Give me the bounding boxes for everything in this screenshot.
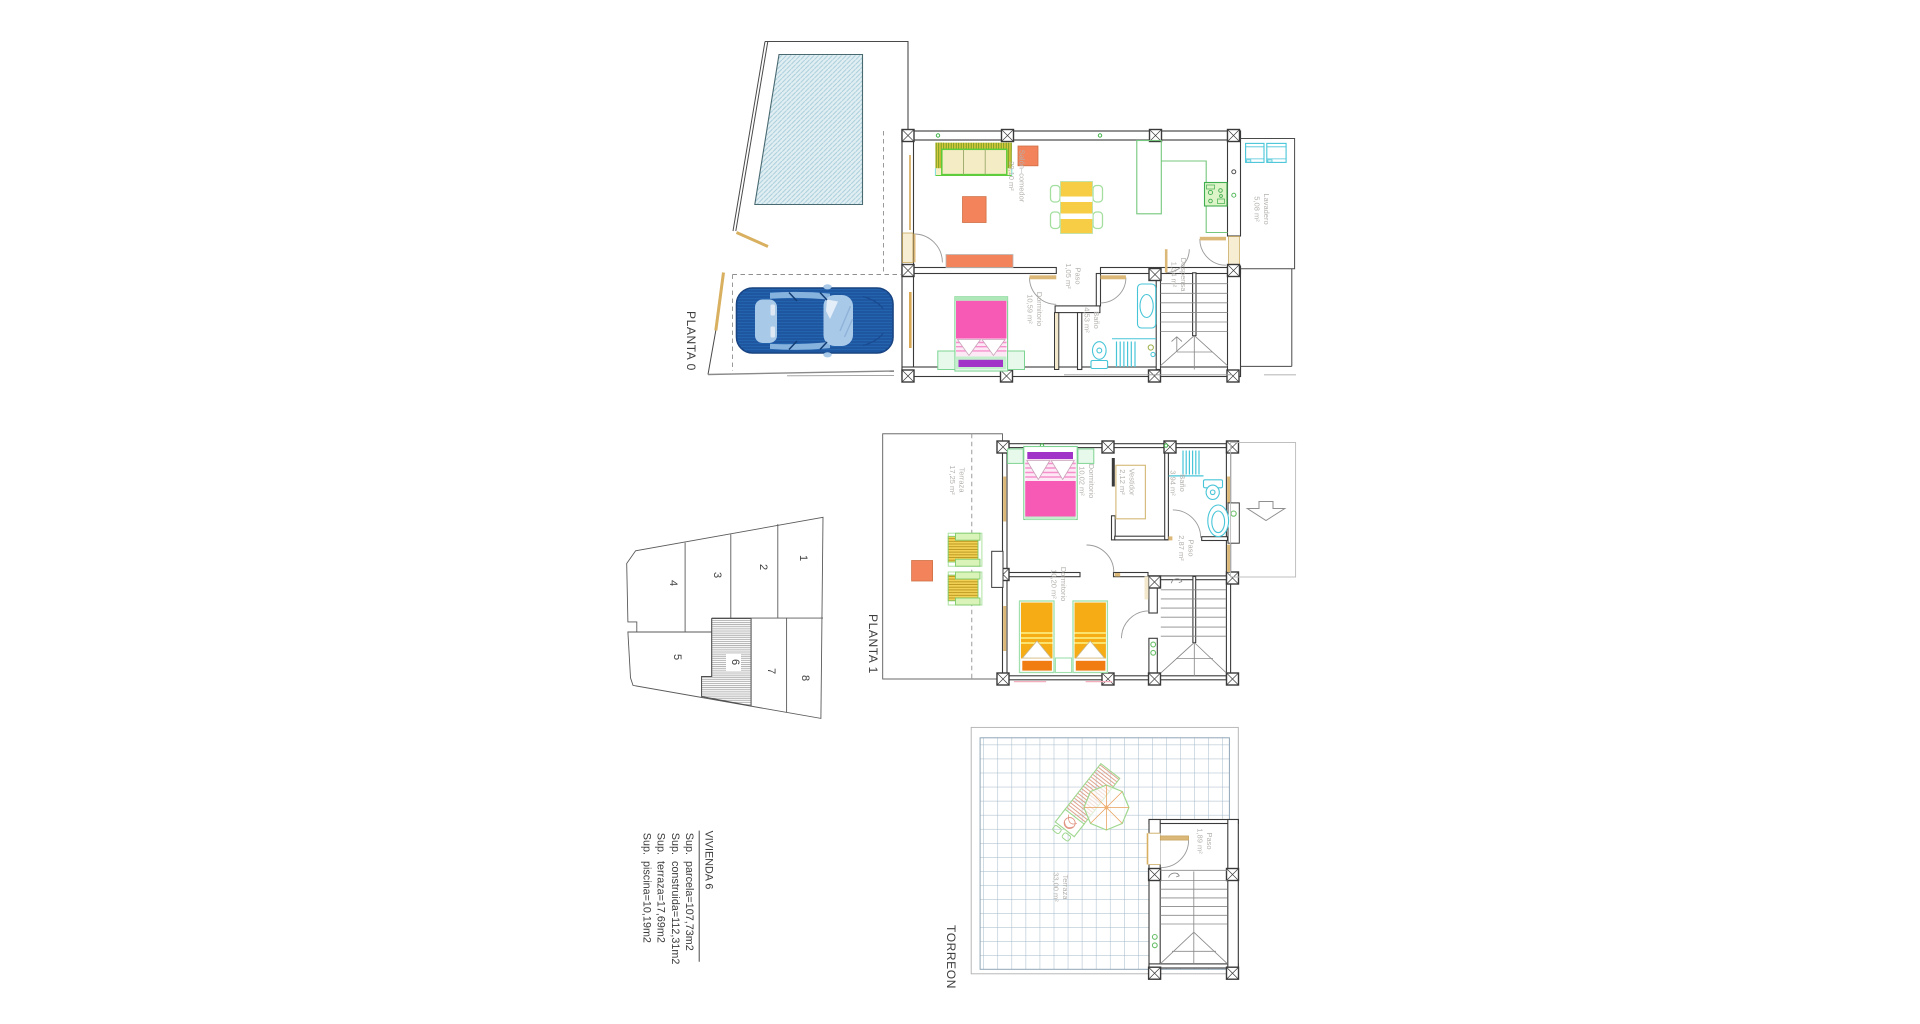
svg-text:7: 7 — [765, 668, 777, 674]
svg-text:Terraza33,00 m²: Terraza33,00 m² — [1052, 872, 1071, 902]
svg-text:Baño3,94 m²: Baño3,94 m² — [1169, 470, 1188, 496]
svg-text:Dormitorio10,02 m²: Dormitorio10,02 m² — [1078, 464, 1097, 499]
svg-text:Despensa1,34 m²: Despensa1,34 m² — [1170, 258, 1189, 293]
svg-text:Sup. terraza=17,69m2: Sup. terraza=17,69m2 — [655, 833, 667, 943]
svg-text:Paso2,87 m²: Paso2,87 m² — [1177, 535, 1196, 561]
svg-text:Dormitorio10,59 m²: Dormitorio10,59 m² — [1026, 292, 1045, 327]
svg-text:Sup. piscina=10,19m2: Sup. piscina=10,19m2 — [640, 833, 652, 943]
svg-text:TORREON: TORREON — [944, 925, 958, 989]
svg-text:4: 4 — [667, 580, 679, 586]
svg-text:6: 6 — [729, 659, 741, 665]
svg-text:2: 2 — [757, 564, 769, 570]
svg-text:Sup. construida=112,31m2: Sup. construida=112,31m2 — [669, 833, 681, 965]
svg-text:1: 1 — [797, 555, 809, 561]
svg-text:Terraza17,25 m²: Terraza17,25 m² — [948, 465, 967, 495]
svg-text:Paso1,05 m²: Paso1,05 m² — [1064, 263, 1083, 289]
svg-text:3: 3 — [711, 572, 723, 578]
svg-text:Baño4,53 m²: Baño4,53 m² — [1083, 307, 1102, 333]
svg-text:5: 5 — [671, 654, 683, 660]
svg-text:Dormitorio10,20 m²: Dormitorio10,20 m² — [1050, 567, 1069, 602]
svg-text:PLANTA 1: PLANTA 1 — [866, 614, 880, 674]
svg-text:Vestidor2,12 m²: Vestidor2,12 m² — [1118, 468, 1137, 496]
svg-text:8: 8 — [799, 675, 811, 681]
svg-text:Sup. parcela=107,73m2: Sup. parcela=107,73m2 — [683, 833, 695, 951]
svg-text:PLANTA 0: PLANTA 0 — [684, 311, 698, 371]
svg-text:Lavadero5,08 m²: Lavadero5,08 m² — [1253, 193, 1272, 224]
svg-text:VIVIENDA 6: VIVIENDA 6 — [703, 831, 715, 890]
